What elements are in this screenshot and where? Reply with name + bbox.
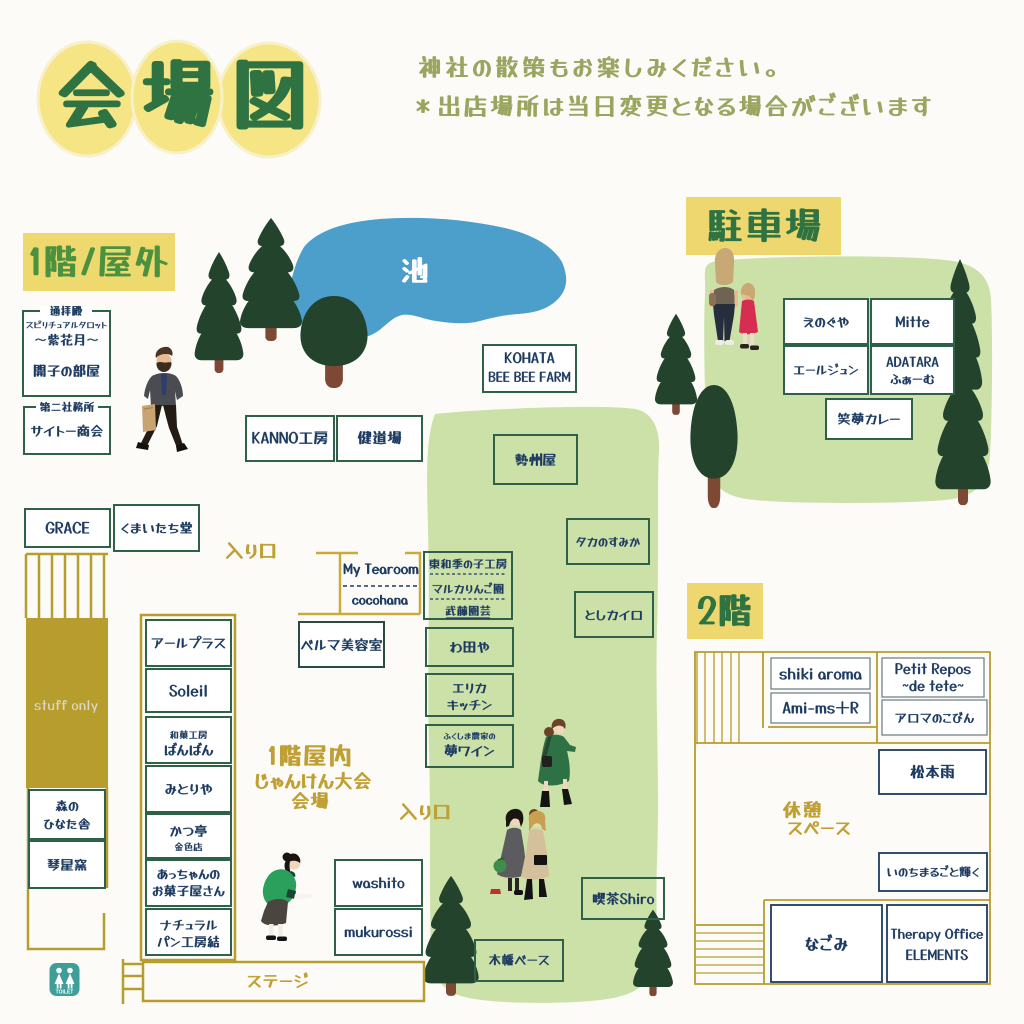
svg-text:TOILET: TOILET [56,990,74,996]
